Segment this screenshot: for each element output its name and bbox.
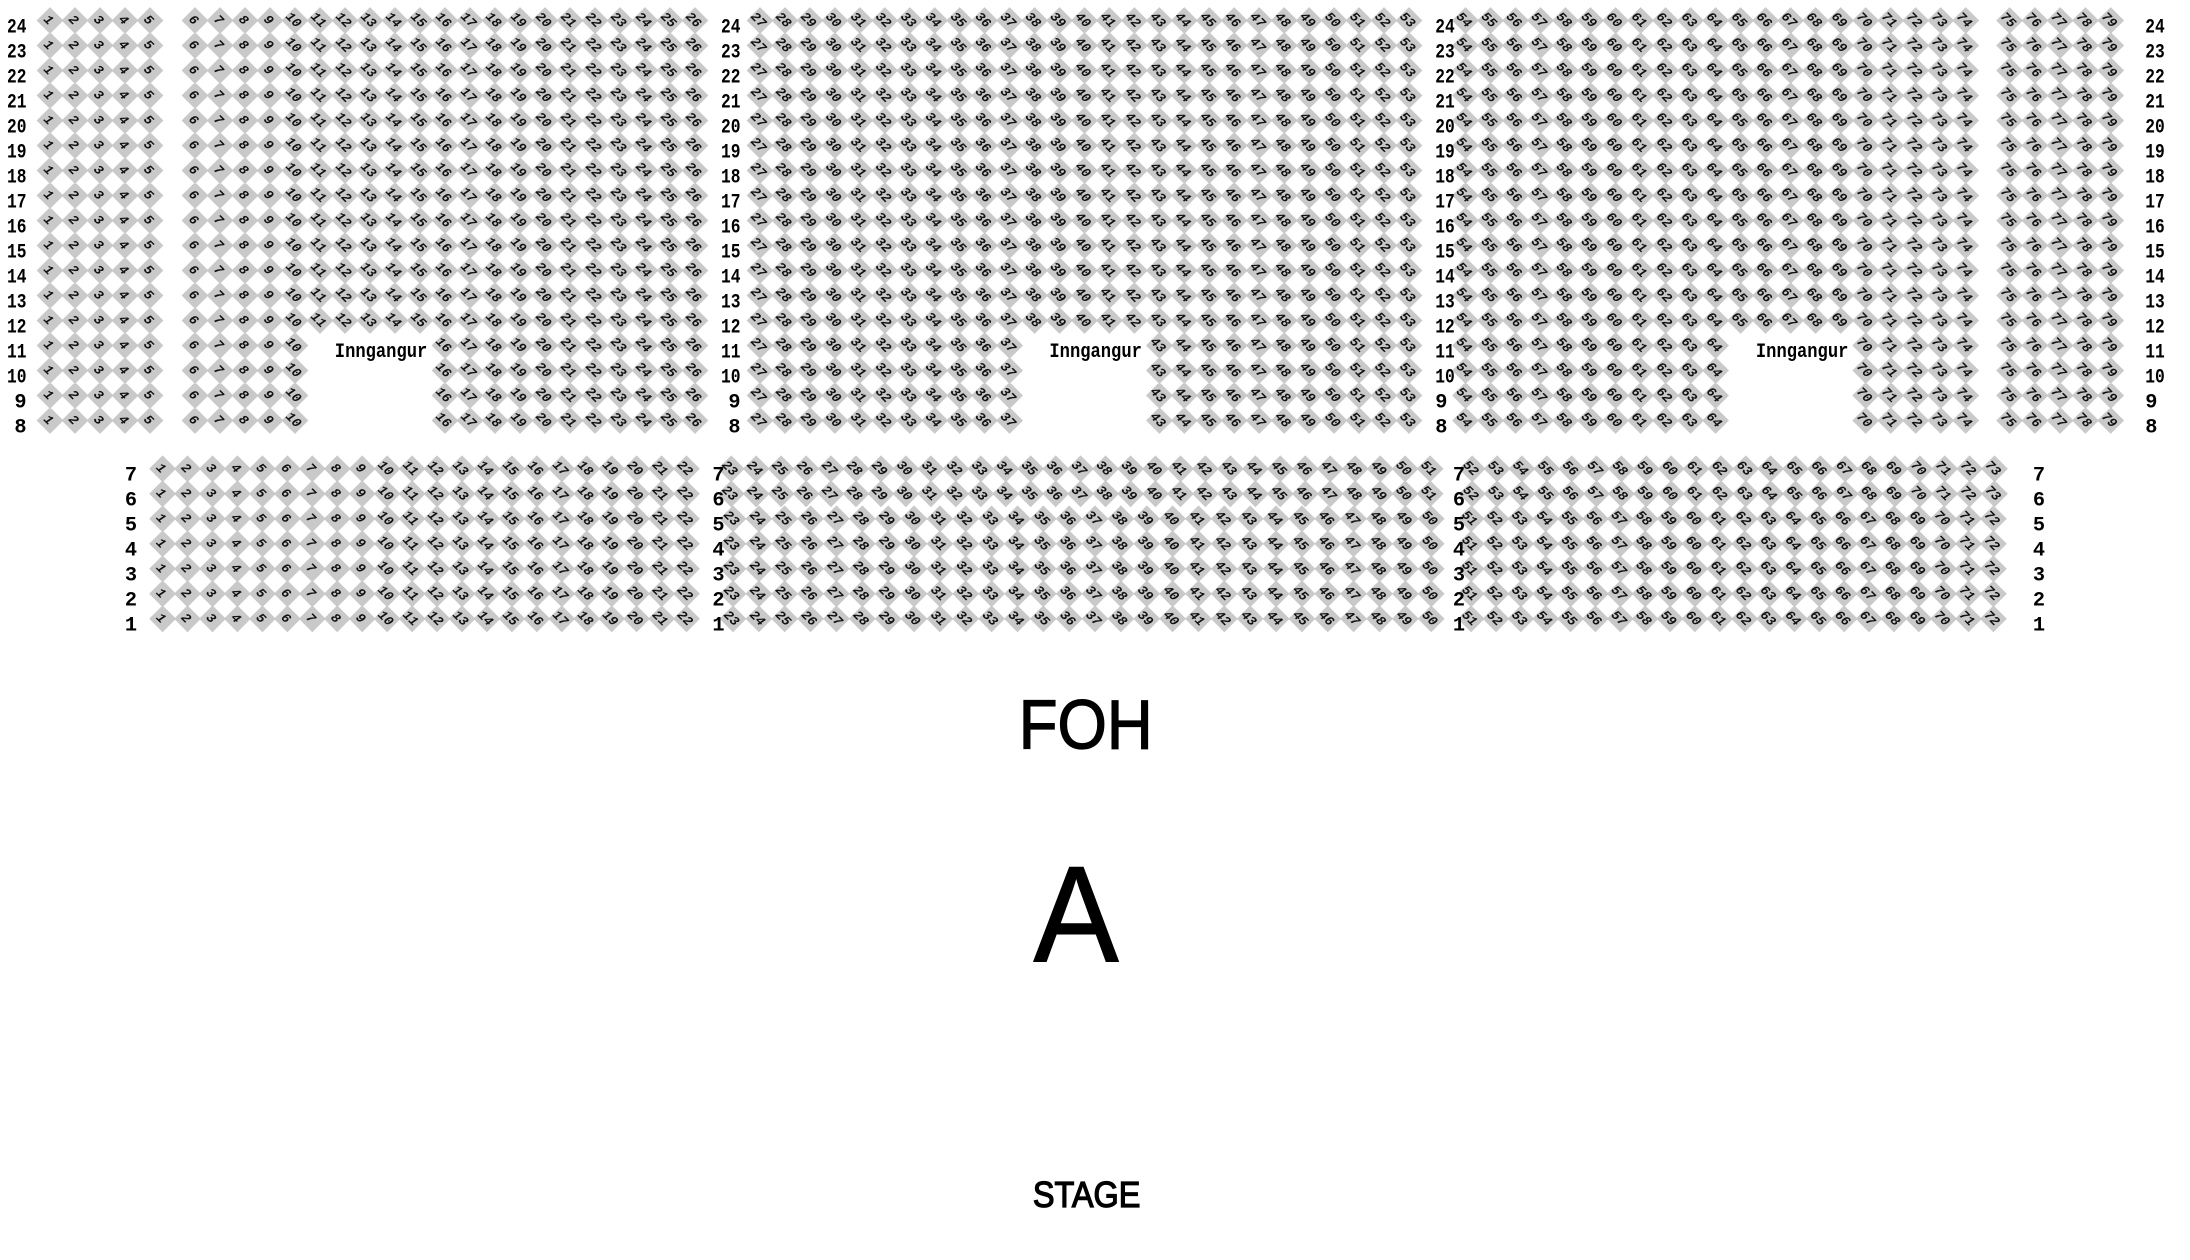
svg-text:20: 20 bbox=[721, 116, 741, 139]
svg-text:2: 2 bbox=[712, 590, 724, 613]
svg-text:23: 23 bbox=[721, 41, 741, 64]
svg-text:3: 3 bbox=[1453, 565, 1465, 588]
svg-text:14: 14 bbox=[1435, 266, 1455, 289]
svg-text:13: 13 bbox=[721, 291, 741, 314]
svg-text:8: 8 bbox=[2145, 416, 2157, 439]
svg-text:7: 7 bbox=[1453, 465, 1465, 488]
svg-text:21: 21 bbox=[2145, 91, 2165, 114]
svg-text:14: 14 bbox=[2145, 266, 2165, 289]
svg-text:15: 15 bbox=[2145, 241, 2165, 264]
svg-text:12: 12 bbox=[7, 316, 27, 339]
svg-text:23: 23 bbox=[1435, 41, 1455, 64]
svg-text:17: 17 bbox=[1435, 191, 1455, 214]
svg-text:Inngangur: Inngangur bbox=[1049, 341, 1142, 364]
svg-text:3: 3 bbox=[712, 565, 724, 588]
svg-text:24: 24 bbox=[721, 16, 741, 39]
svg-text:5: 5 bbox=[2033, 515, 2045, 538]
svg-text:2: 2 bbox=[1453, 590, 1465, 613]
svg-text:12: 12 bbox=[721, 316, 741, 339]
svg-text:11: 11 bbox=[2145, 341, 2165, 364]
svg-text:15: 15 bbox=[1435, 241, 1455, 264]
svg-text:STAGE: STAGE bbox=[1033, 1174, 1141, 1215]
svg-text:18: 18 bbox=[1435, 166, 1455, 189]
svg-text:21: 21 bbox=[7, 91, 27, 114]
svg-text:22: 22 bbox=[721, 66, 741, 89]
svg-text:Inngangur: Inngangur bbox=[1756, 341, 1849, 364]
svg-text:19: 19 bbox=[2145, 141, 2165, 164]
svg-text:15: 15 bbox=[7, 241, 27, 264]
svg-text:5: 5 bbox=[125, 515, 137, 538]
svg-text:18: 18 bbox=[721, 166, 741, 189]
svg-text:9: 9 bbox=[14, 391, 26, 414]
svg-text:13: 13 bbox=[7, 291, 27, 314]
svg-text:12: 12 bbox=[2145, 316, 2165, 339]
svg-text:2: 2 bbox=[2033, 590, 2045, 613]
svg-text:23: 23 bbox=[2145, 41, 2165, 64]
svg-text:18: 18 bbox=[7, 166, 27, 189]
svg-text:24: 24 bbox=[1435, 16, 1455, 39]
svg-text:1: 1 bbox=[125, 615, 137, 638]
svg-text:8: 8 bbox=[14, 416, 26, 439]
svg-text:6: 6 bbox=[125, 490, 137, 513]
svg-text:14: 14 bbox=[7, 266, 27, 289]
svg-text:7: 7 bbox=[712, 465, 724, 488]
svg-text:23: 23 bbox=[7, 41, 27, 64]
svg-text:3: 3 bbox=[2033, 565, 2045, 588]
svg-text:FOH: FOH bbox=[1019, 685, 1153, 763]
svg-text:21: 21 bbox=[721, 91, 741, 114]
svg-text:22: 22 bbox=[1435, 66, 1455, 89]
svg-text:11: 11 bbox=[721, 341, 741, 364]
svg-text:8: 8 bbox=[728, 416, 740, 439]
svg-text:8: 8 bbox=[1435, 416, 1447, 439]
svg-text:22: 22 bbox=[2145, 66, 2165, 89]
svg-text:18: 18 bbox=[2145, 166, 2165, 189]
svg-text:11: 11 bbox=[7, 341, 27, 364]
svg-text:7: 7 bbox=[2033, 465, 2045, 488]
svg-text:22: 22 bbox=[7, 66, 27, 89]
svg-text:20: 20 bbox=[1435, 116, 1455, 139]
svg-text:5: 5 bbox=[712, 515, 724, 538]
svg-text:11: 11 bbox=[1435, 341, 1455, 364]
svg-text:13: 13 bbox=[2145, 291, 2165, 314]
svg-text:20: 20 bbox=[2145, 116, 2165, 139]
svg-text:10: 10 bbox=[721, 366, 741, 389]
svg-text:Inngangur: Inngangur bbox=[335, 341, 428, 364]
svg-text:10: 10 bbox=[2145, 366, 2165, 389]
svg-text:16: 16 bbox=[721, 216, 741, 239]
svg-text:19: 19 bbox=[7, 141, 27, 164]
svg-text:7: 7 bbox=[125, 465, 137, 488]
svg-text:16: 16 bbox=[7, 216, 27, 239]
svg-text:9: 9 bbox=[2145, 391, 2157, 414]
svg-text:4: 4 bbox=[1453, 540, 1465, 563]
svg-text:6: 6 bbox=[712, 490, 724, 513]
svg-text:6: 6 bbox=[2033, 490, 2045, 513]
svg-text:24: 24 bbox=[7, 16, 27, 39]
svg-text:1: 1 bbox=[712, 615, 724, 638]
svg-text:4: 4 bbox=[2033, 540, 2045, 563]
svg-text:3: 3 bbox=[125, 565, 137, 588]
svg-text:24: 24 bbox=[2145, 16, 2165, 39]
svg-text:14: 14 bbox=[721, 266, 741, 289]
svg-text:A: A bbox=[1034, 837, 1119, 990]
svg-text:17: 17 bbox=[7, 191, 27, 214]
svg-text:4: 4 bbox=[712, 540, 724, 563]
svg-text:16: 16 bbox=[2145, 216, 2165, 239]
svg-text:6: 6 bbox=[1453, 490, 1465, 513]
svg-text:10: 10 bbox=[1435, 366, 1455, 389]
svg-text:1: 1 bbox=[2033, 615, 2045, 638]
svg-text:16: 16 bbox=[1435, 216, 1455, 239]
svg-text:17: 17 bbox=[721, 191, 741, 214]
svg-text:5: 5 bbox=[1453, 515, 1465, 538]
svg-text:21: 21 bbox=[1435, 91, 1455, 114]
svg-text:9: 9 bbox=[1435, 391, 1447, 414]
svg-text:9: 9 bbox=[728, 391, 740, 414]
svg-text:10: 10 bbox=[7, 366, 27, 389]
svg-text:2: 2 bbox=[125, 590, 137, 613]
svg-text:17: 17 bbox=[2145, 191, 2165, 214]
svg-text:19: 19 bbox=[1435, 141, 1455, 164]
svg-text:19: 19 bbox=[721, 141, 741, 164]
svg-text:20: 20 bbox=[7, 116, 27, 139]
svg-text:15: 15 bbox=[721, 241, 741, 264]
svg-text:4: 4 bbox=[125, 540, 137, 563]
svg-text:13: 13 bbox=[1435, 291, 1455, 314]
svg-text:1: 1 bbox=[1453, 615, 1465, 638]
svg-text:12: 12 bbox=[1435, 316, 1455, 339]
